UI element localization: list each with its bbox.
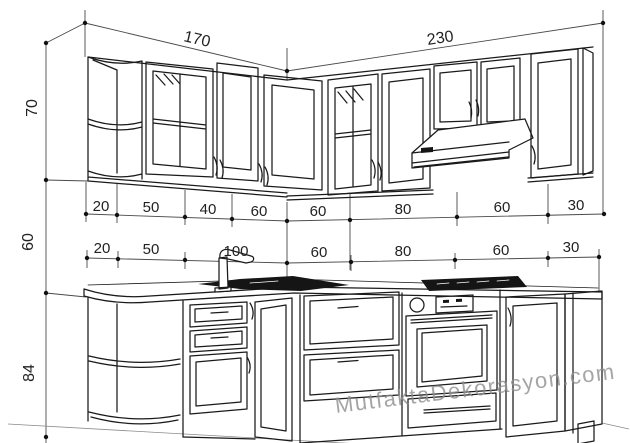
oven-control-marks bbox=[443, 299, 462, 303]
dim-row-wall bbox=[86, 214, 604, 221]
kitchen-drawing-svg: 170 230 70 60 84 20 50 40 60 60 80 60 30… bbox=[0, 0, 630, 443]
dim-row-base bbox=[87, 257, 599, 263]
wall-hood-doors bbox=[434, 58, 520, 129]
dim-label-wall-seg-2: 50 bbox=[143, 199, 160, 216]
wall-cabinets-right bbox=[287, 47, 593, 200]
range-hood-control bbox=[421, 147, 433, 153]
oven-unit bbox=[402, 290, 500, 436]
dim-label-base-seg-1: 20 bbox=[94, 240, 111, 257]
kitchen-dimension-drawing: 170 230 70 60 84 20 50 40 60 60 80 60 30… bbox=[0, 0, 630, 443]
dim-label-wall-seg-5: 60 bbox=[310, 203, 327, 220]
dim-label-base-seg-4: 60 bbox=[311, 244, 328, 261]
dim-label-base-seg-3: 100 bbox=[223, 243, 248, 260]
watermark-text: MutfaktaDekorasyon.com bbox=[334, 359, 617, 418]
dim-label-base-seg-6: 60 bbox=[493, 242, 510, 259]
oven-knob bbox=[410, 298, 424, 312]
dim-label-base-seg-2: 50 bbox=[143, 241, 160, 258]
base-drawer-unit bbox=[183, 302, 255, 439]
wall-solid-door bbox=[217, 63, 258, 181]
dim-label-wall-seg-6: 80 bbox=[395, 201, 412, 218]
dim-label-wall-height: 70 bbox=[24, 99, 41, 117]
dim-label-wall-seg-3: 40 bbox=[200, 201, 217, 218]
dim-label-wall-seg-1: 20 bbox=[93, 198, 110, 215]
dim-label-backsplash-height: 60 bbox=[20, 233, 37, 251]
door-handles-3 bbox=[372, 160, 381, 180]
door-handle-5 bbox=[532, 146, 535, 164]
dim-left-projections bbox=[46, 23, 88, 297]
base-cabinets bbox=[88, 290, 602, 443]
wall-open-corner-shelf bbox=[88, 57, 142, 179]
oven-control-panel bbox=[436, 295, 473, 313]
dim-label-base-seg-7: 30 bbox=[563, 239, 580, 256]
dim-label-wall-seg-8: 30 bbox=[568, 197, 585, 214]
floor-line bbox=[8, 423, 629, 443]
base-open-corner-shelf bbox=[88, 297, 183, 437]
dim-label-base-height: 84 bbox=[21, 364, 38, 382]
base-toe-kick bbox=[300, 429, 502, 443]
wall-end-cabinet bbox=[531, 49, 578, 178]
wall-corner-door bbox=[264, 75, 322, 190]
wall-glass-door bbox=[146, 62, 213, 177]
cooktop bbox=[421, 276, 527, 291]
dim-label-base-seg-5: 80 bbox=[395, 243, 412, 260]
base-corner-door bbox=[250, 298, 292, 441]
wall-panel-door bbox=[382, 69, 430, 191]
dim-label-wall-seg-4: 60 bbox=[251, 203, 268, 220]
base-wide-drawers bbox=[300, 292, 399, 443]
base-segment-labels: 20 50 100 60 80 60 30 bbox=[94, 239, 580, 261]
dim-label-wall-seg-7: 60 bbox=[494, 199, 511, 216]
door-handles-1 bbox=[214, 157, 223, 178]
wall-shelf-cabinet bbox=[328, 74, 378, 195]
